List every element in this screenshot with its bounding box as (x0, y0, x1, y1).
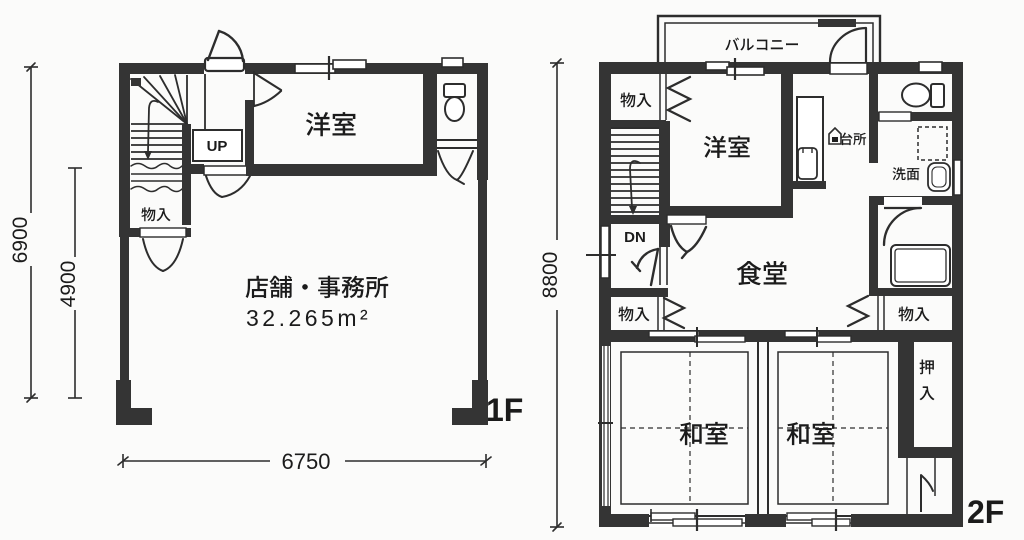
svg-text:4900: 4900 (57, 261, 80, 308)
svg-text:DN: DN (624, 229, 646, 246)
svg-text:6900: 6900 (9, 217, 32, 264)
svg-text:1F: 1F (486, 392, 523, 428)
svg-text:8800: 8800 (539, 252, 562, 299)
svg-text:6750: 6750 (282, 449, 331, 474)
svg-text:32.265m²: 32.265m² (246, 305, 371, 331)
svg-text:UP: UP (207, 138, 228, 155)
svg-text:2F: 2F (967, 494, 1004, 530)
